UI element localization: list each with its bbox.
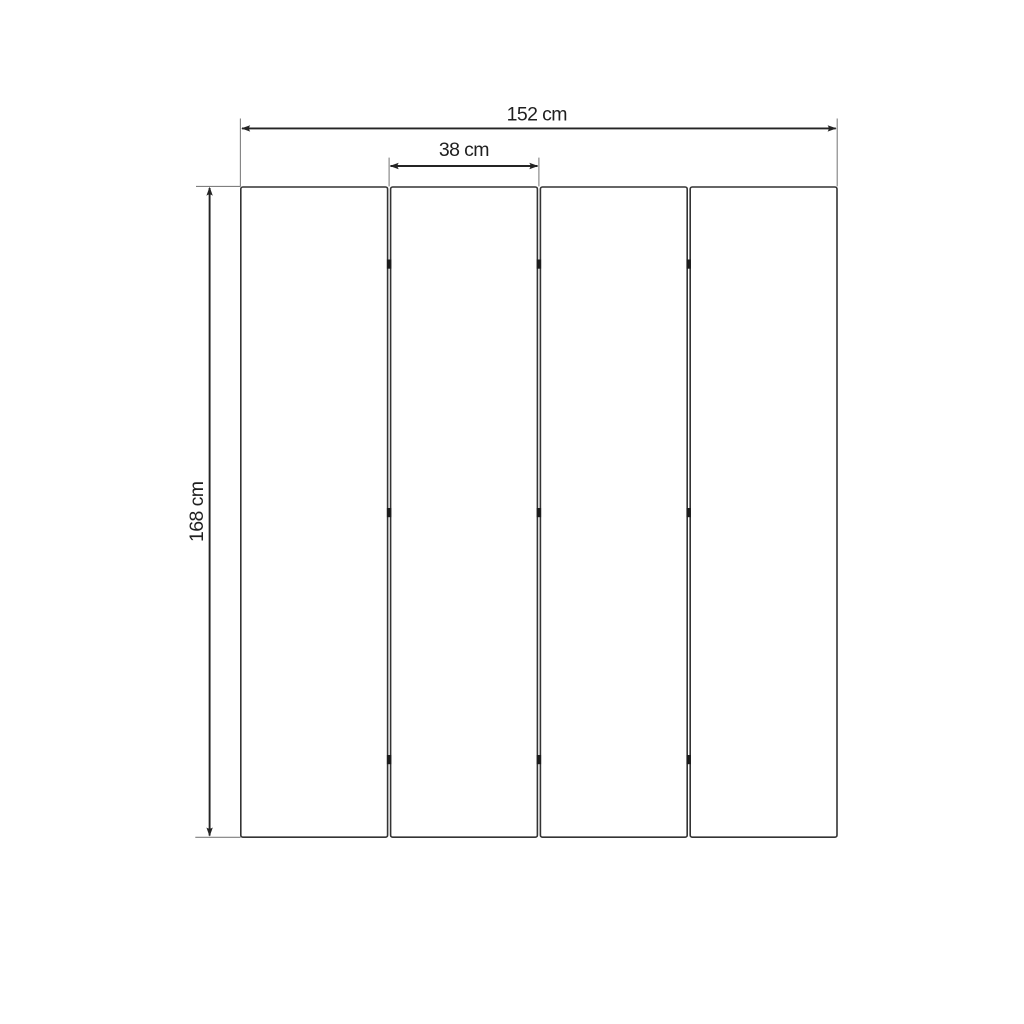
- svg-text:168 cm: 168 cm: [186, 482, 208, 542]
- svg-text:152 cm: 152 cm: [507, 104, 567, 126]
- svg-text:38 cm: 38 cm: [439, 139, 489, 161]
